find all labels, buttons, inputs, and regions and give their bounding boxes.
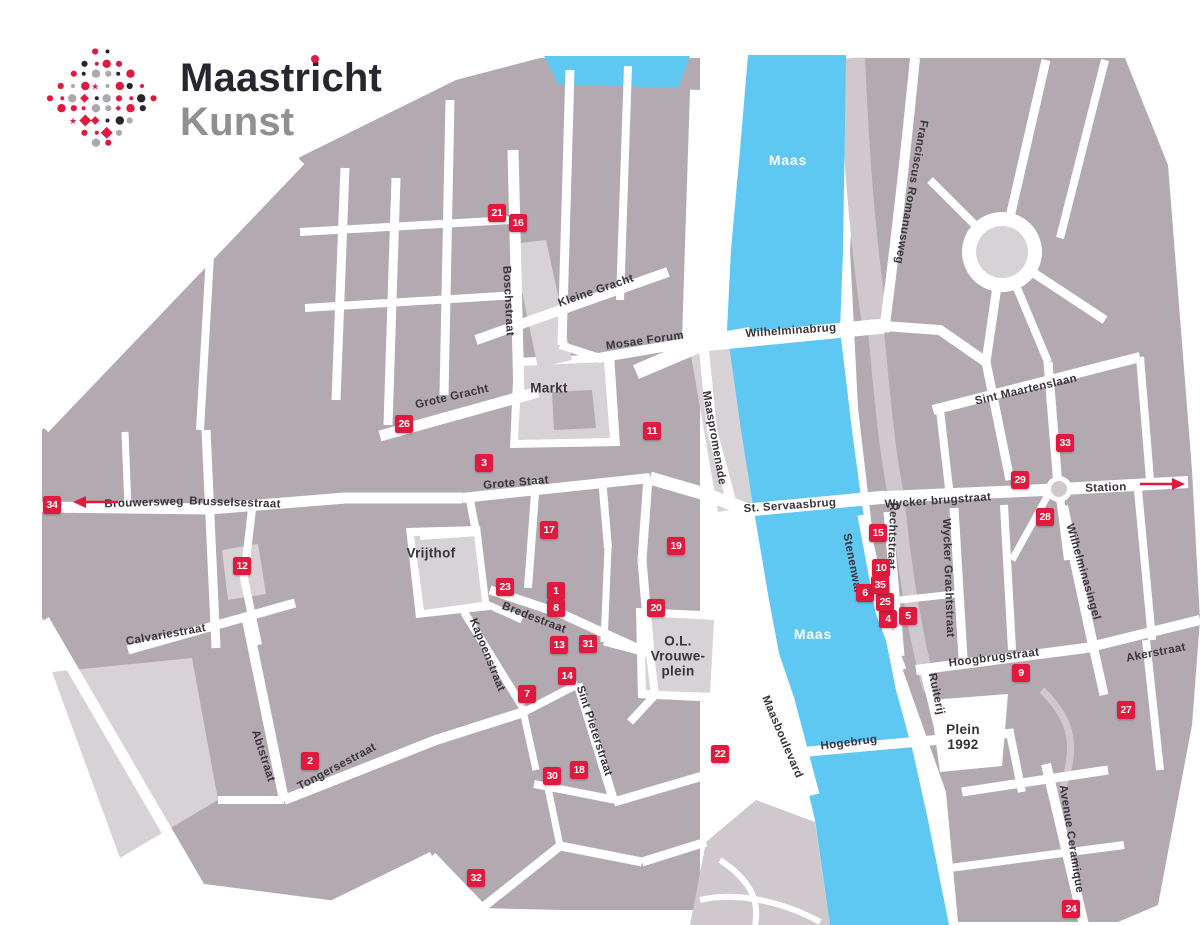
map-marker-28[interactable]: 28: [1036, 508, 1054, 526]
map-marker-34[interactable]: 34: [43, 496, 61, 514]
street-label-avenue-ceramique: Avenue Ceramique: [1057, 784, 1086, 894]
map-marker-29[interactable]: 29: [1011, 471, 1029, 489]
map-marker-9[interactable]: 9: [1012, 664, 1030, 682]
street-label-boschstraat: Boschstraat: [500, 266, 516, 337]
street-label-wilhelminabrug: Wilhelminabrug: [745, 322, 837, 340]
street-label-abtstraat: Abtstraat: [249, 729, 277, 784]
map-marker-1[interactable]: 1: [547, 582, 565, 600]
map-marker-5[interactable]: 5: [899, 607, 917, 625]
map-marker-21[interactable]: 21: [488, 204, 506, 222]
street-label-calvariestraat: Calvariestraat: [125, 622, 207, 648]
street-label-st-servaasbrug: St. Servaasbrug: [743, 497, 836, 515]
svg-text:★: ★: [91, 82, 99, 92]
street-label-grote-gracht: Grote Gracht: [414, 383, 490, 412]
street-label-wilhelminasingel: Wilhelminasingel: [1064, 523, 1103, 622]
map-marker-12[interactable]: 12: [233, 557, 251, 575]
street-label-kapoenstraat: Kapoenstraat: [467, 617, 507, 694]
map-marker-3[interactable]: 3: [475, 454, 493, 472]
street-label-akerstraat: Akerstraat: [1125, 641, 1187, 664]
map-marker-26[interactable]: 26: [395, 415, 413, 433]
map-marker-14[interactable]: 14: [558, 667, 576, 685]
street-label-maasboulevard: Maasboulevard: [759, 694, 805, 780]
map-marker-25[interactable]: 25: [876, 593, 894, 611]
map-marker-32[interactable]: 32: [467, 869, 485, 887]
map-marker-15[interactable]: 15: [869, 524, 887, 542]
street-label-brusselsestraat: Brusselsestraat: [189, 495, 281, 510]
area-label-vrijthof: Vrijthof: [407, 545, 456, 560]
map-marker-35[interactable]: 35: [871, 576, 889, 594]
map-marker-33[interactable]: 33: [1056, 434, 1074, 452]
river-label-maas: Maas: [794, 626, 832, 642]
map-canvas: MaasMaasWilhelminabrugFranciscus Romanus…: [0, 0, 1200, 925]
area-label-o-l-vrouwe-plein: O.L. Vrouwe- plein: [651, 633, 706, 678]
map-marker-23[interactable]: 23: [496, 578, 514, 596]
street-label-maaspromenade: Maaspromenade: [700, 390, 728, 486]
street-label-mosae-forum: Mosae Forum: [605, 330, 685, 353]
map-marker-8[interactable]: 8: [547, 599, 565, 617]
map-marker-10[interactable]: 10: [872, 559, 890, 577]
map-marker-7[interactable]: 7: [518, 685, 536, 703]
area-label-markt: Markt: [530, 380, 568, 395]
map-marker-22[interactable]: 22: [711, 745, 729, 763]
map-marker-30[interactable]: 30: [543, 767, 561, 785]
map-marker-16[interactable]: 16: [509, 214, 527, 232]
map-marker-27[interactable]: 27: [1117, 701, 1135, 719]
map-marker-17[interactable]: 17: [540, 521, 558, 539]
river-label-maas: Maas: [769, 152, 807, 168]
map-marker-31[interactable]: 31: [579, 635, 597, 653]
map-marker-18[interactable]: 18: [570, 761, 588, 779]
street-label-kleine-gracht: Kleine Gracht: [557, 272, 636, 309]
logo: ★★ Maastricht Kunst: [40, 28, 460, 178]
street-label-wycker-grachtstraat: Wycker Grachtstraat: [940, 518, 956, 637]
map-marker-24[interactable]: 24: [1062, 900, 1080, 918]
map-marker-2[interactable]: 2: [301, 752, 319, 770]
map-marker-4[interactable]: 4: [879, 610, 897, 628]
street-label-hogebrug: Hogebrug: [820, 734, 878, 753]
map-marker-13[interactable]: 13: [550, 636, 568, 654]
street-label-sint-maartenslaan: Sint Maartenslaan: [974, 372, 1078, 407]
direction-arrow-right: [1138, 477, 1186, 496]
map-marker-20[interactable]: 20: [647, 599, 665, 617]
dot-pattern-logo-icon: ★★: [40, 28, 170, 178]
street-label-grote-staat: Grote Staat: [483, 474, 550, 492]
street-label-station: Station: [1085, 481, 1127, 494]
map-marker-11[interactable]: 11: [643, 422, 661, 440]
street-label-franciscus-romanusweg: Franciscus Romanusweg: [892, 119, 929, 265]
logo-subtitle: Kunst: [180, 102, 294, 142]
logo-i-dot-icon: [311, 55, 319, 63]
street-label-ruiterij: Ruiterij: [926, 672, 947, 716]
logo-title: Maastricht: [180, 58, 382, 98]
svg-text:★: ★: [69, 116, 77, 126]
direction-arrow-left: [72, 495, 120, 514]
street-label-wycker-brugstraat: Wycker brugstraat: [884, 491, 991, 510]
area-label-plein-1992: Plein 1992: [946, 722, 980, 752]
map-marker-19[interactable]: 19: [667, 537, 685, 555]
